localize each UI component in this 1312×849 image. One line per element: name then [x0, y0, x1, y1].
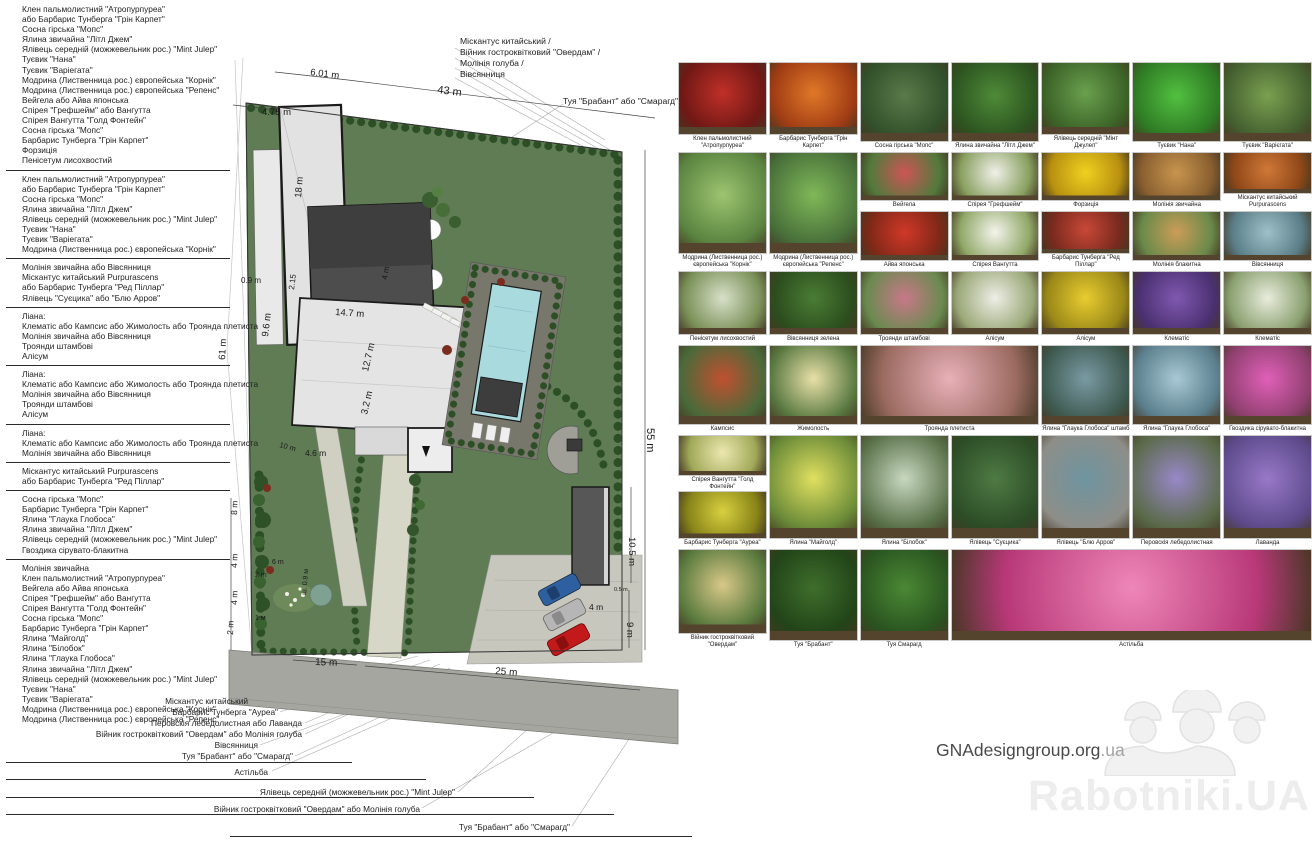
plant-caption: Ялина "Глаука Глобоса" штамб: [1041, 425, 1130, 433]
plant-label: Барбарис Тунберга "Грін Карпет": [22, 135, 230, 145]
plant-label: Міскантус китайський Purpurascens: [22, 466, 230, 476]
plant-card: Ялівець "Блю Арров": [1041, 435, 1130, 547]
plant-caption: Модрина (Лиственница рос.) європейська "…: [678, 254, 767, 269]
plant-caption: Вівсянниця зелена: [769, 335, 858, 343]
plant-label: Ялівець "Суєцика" або "Блю Арров": [22, 293, 230, 303]
plant-card: Гвоздика сірувато-блакитна: [1223, 345, 1312, 433]
plant-card: Клематіс: [1223, 271, 1312, 343]
plant-caption: Алісум: [1041, 335, 1130, 343]
plant-label: або Барбарис Тунберга "Грін Карпет": [22, 184, 230, 194]
dimension-label: 25 m: [495, 666, 518, 679]
plant-label: Клен пальмолистний "Атропурпуреа": [22, 573, 230, 583]
plant-label: Ялина звичайна "Літл Джем": [22, 34, 230, 44]
plant-card: Туя Смарагд: [860, 549, 949, 649]
plant-label: Туя "Брабант" або "Смарагд": [459, 822, 570, 832]
plant-caption: Троянди штамбові: [860, 335, 949, 343]
plant-caption: Барбарис Тунберга "Ауреа": [678, 539, 767, 547]
plant-label: Пенісетум лисохвостий: [22, 155, 230, 165]
plant-group: Міскантус китайський Purpurascensабо Бар…: [6, 462, 230, 488]
plant-label: Сосна гірська "Мопс": [22, 194, 230, 204]
plant-label: Модрина (Лиственница рос.) європейська "…: [22, 244, 230, 254]
plant-label: Перовскія лебедолистная або Лаванда: [151, 718, 302, 728]
dimension-label: 2 m: [255, 572, 267, 579]
plant-photo: [860, 345, 1040, 425]
plant-caption: Троянда плетиста: [860, 425, 1040, 433]
plant-photo: [1041, 271, 1130, 335]
plant-caption: Війник гостроквітковий "Овердам": [678, 634, 767, 649]
plant-card: Барбарис Тунберга "Ауреа": [678, 491, 767, 547]
plant-caption: Ялівець "Суєцика": [951, 539, 1040, 547]
plant-label: Ялівець середній (можжевельник рос.) "Mi…: [22, 214, 230, 224]
dimension-label: 15 m: [315, 657, 338, 669]
plant-photo: [860, 271, 949, 335]
plant-card: Ялина "Глаука Глобоса" штамб: [1041, 345, 1130, 433]
plant-photo: [860, 211, 949, 261]
plant-photo: [860, 62, 949, 142]
plant-photo: [1041, 345, 1130, 425]
plant-photo: [1041, 62, 1130, 135]
dimension-label: 9 m: [624, 622, 635, 638]
plant-label: Молінія звичайна або Вівсянниця: [22, 262, 230, 272]
plant-group: Клен пальмолистний "Атропурпуреа"або Бар…: [6, 170, 230, 257]
plant-label: Молінія звичайна або Вівсянниця: [22, 389, 230, 399]
top-plant-labels: Міскантус китайський /Війник гостроквітк…: [460, 36, 600, 80]
plant-label: Туєвик "Варіегата": [22, 65, 230, 75]
plant-card: Вівсянниця: [1223, 211, 1312, 269]
plant-card: Вівсянниця зелена: [769, 271, 858, 343]
plant-card: Ялина звичайна "Літл Джем": [951, 62, 1040, 150]
plant-label: Молінія звичайна або Вівсянниця: [22, 331, 230, 341]
plant-caption: Молінія блакитна: [1132, 261, 1221, 269]
plant-caption: Туя Смарагд: [860, 641, 949, 649]
plant-photo: [1132, 345, 1221, 425]
plant-card: Лаванда: [1223, 435, 1312, 547]
plant-card: Спірея Вангутта: [951, 211, 1040, 269]
dimension-label: 4 m: [589, 602, 603, 612]
plant-photo: [860, 549, 949, 641]
plant-group: Ліана:Клематіс або Кампсис або Жимолость…: [6, 424, 230, 460]
plant-card: Астільба: [951, 549, 1312, 649]
plant-photo: [860, 152, 949, 201]
plant-photo: [1041, 435, 1130, 539]
plant-caption: Клематіс: [1223, 335, 1312, 343]
plant-label: Вейгела або Айва японська: [22, 583, 230, 593]
plant-card: Барбарис Тунберга "Грін Карпет": [769, 62, 858, 150]
plant-card: Айва японська: [860, 211, 949, 269]
plant-label: Міскантус китайський Purpurascens: [22, 272, 230, 282]
plant-label: Туєвик "Варіегата": [22, 234, 230, 244]
plant-photo: [769, 435, 858, 539]
plant-label: Форзиція: [22, 145, 230, 155]
dimension-label: 43 m: [437, 84, 463, 99]
plant-label: Ялина звичайна "Літл Джем": [22, 664, 230, 674]
plant-caption: Туєвик "Нана": [1132, 142, 1221, 150]
plant-photo: [769, 271, 858, 335]
plant-label: Сосна гірська "Мопс": [22, 494, 230, 504]
plant-label: Молінія звичайна або Вівсянниця: [22, 448, 230, 458]
dimension-label: 4 m: [229, 591, 239, 606]
plant-caption: Астільба: [951, 641, 1312, 649]
plant-card: Модрина (Лиственница рос.) європейська "…: [769, 152, 858, 269]
plant-card: Перовскія лебедолистная: [1132, 435, 1221, 547]
plant-group: Ліана:Клематіс або Кампсис або Жимолость…: [6, 365, 230, 421]
plant-label: Міскантус китайський: [165, 696, 248, 706]
dimension-label: 0.5 m: [614, 587, 628, 593]
plant-label: Ялина "Глаука Глобоса": [22, 653, 230, 663]
left-plant-list: Клен пальмолистний "Атропурпуреа"або Бар…: [6, 3, 230, 726]
plant-label: Війник гостроквітковий "Овердам" /: [460, 47, 600, 58]
rule: [6, 814, 614, 815]
plant-photo: [1132, 435, 1221, 539]
plant-photo: [1223, 345, 1312, 425]
plant-label: Ліана:: [22, 369, 230, 379]
plant-label: Алісум: [22, 409, 230, 419]
dimension-label: 4 m: [229, 554, 239, 569]
plant-caption: Пенісетум лисохвостий: [678, 335, 767, 343]
plant-label: Спірея "Грефшейм" або Вангутта: [22, 105, 230, 115]
plant-card: Ялина "Майголд": [769, 435, 858, 547]
site-url: GNAdesigngroup.org.ua: [936, 740, 1125, 761]
plant-card: Вейгела: [860, 152, 949, 209]
plant-photo: [769, 345, 858, 425]
plant-caption: Молінія звичайна: [1132, 201, 1221, 209]
plant-label: Клематіс або Кампсис або Жимолость або Т…: [22, 438, 230, 448]
plant-label: Сосна гірська "Мопс": [22, 613, 230, 623]
plant-photo: [769, 549, 858, 641]
dimension-label: 18 m: [293, 176, 306, 198]
plant-label: Ялина "Глаука Глобоса": [22, 514, 230, 524]
plant-photo: [1041, 211, 1130, 254]
plant-card: Війник гостроквітковий "Овердам": [678, 549, 767, 649]
plant-photo: [1223, 62, 1312, 142]
plant-label: Барбарис Тунберга "Ауреа": [172, 707, 278, 717]
plant-label: Клен пальмолистний "Атропурпуреа": [22, 174, 230, 184]
plant-label: Туєвик "Нана": [22, 54, 230, 64]
plant-label: або Барбарис Тунберга "Ред Піллар": [22, 282, 230, 292]
plant-label: Вівсянниця: [215, 740, 258, 750]
plant-label: Молінія голуба /: [460, 58, 600, 69]
plant-label: Війник гостроквітковий "Овердам" або Мол…: [96, 729, 302, 739]
plant-label: Барбарис Тунберга "Грін Карпет": [22, 623, 230, 633]
plant-card: Клен пальмолистний "Атропурпуреа": [678, 62, 767, 150]
plant-caption: Перовскія лебедолистная: [1132, 539, 1221, 547]
plant-card: Троянда плетиста: [860, 345, 1040, 433]
plant-caption: Кампсис: [678, 425, 767, 433]
workers-icon: [1095, 690, 1295, 781]
plant-label: Сосна гірська "Мопс": [22, 125, 230, 135]
plant-caption: Міскантус китайський Purpurascens: [1223, 194, 1312, 209]
plant-group: Клен пальмолистний "Атропурпуреа"або Бар…: [6, 3, 230, 168]
plant-card: Молінія блакитна: [1132, 211, 1221, 269]
plant-photo: [951, 549, 1312, 641]
plant-caption: Спірея "Грефшейм": [951, 201, 1040, 209]
plant-photo: [951, 62, 1040, 142]
plant-group: Молінія звичайна або ВівсянницяМіскантус…: [6, 258, 230, 304]
plant-caption: Айва японська: [860, 261, 949, 269]
plant-label: Міскантус китайський /: [460, 36, 600, 47]
plant-photo: [1223, 435, 1312, 539]
plant-photo: [1132, 211, 1221, 261]
plant-label: Ліана:: [22, 311, 230, 321]
plant-photo: [1132, 152, 1221, 201]
plant-label: Вейгела або Айва японська: [22, 95, 230, 105]
plant-photo: [951, 152, 1040, 201]
plant-photo: [678, 62, 767, 135]
pond: [310, 584, 332, 606]
plant-caption: Вейгела: [860, 201, 949, 209]
plant-card: Спірея Вангутта "Голд Фонтейн": [678, 435, 767, 491]
plant-caption: Вівсянниця: [1223, 261, 1312, 269]
plant-label: Ялина звичайна "Літл Джем": [22, 524, 230, 534]
dimension-label: 1 м: [255, 615, 266, 622]
plant-label: Молінія звичайна: [22, 563, 230, 573]
rule: [6, 797, 534, 798]
landscape-design-sheet: { "left_plant_groups": [ {"lines":["Клен…: [0, 0, 1312, 844]
plant-caption: Туєвик "Варієгата": [1223, 142, 1312, 150]
plant-label: Гвоздика сірувато-блакитна: [22, 545, 230, 555]
plant-label: Ялівець середній (можжевельник рос.) "Mi…: [260, 787, 455, 797]
plant-label: Сосна гірська "Мопс": [22, 24, 230, 34]
plant-caption: Форзиція: [1041, 201, 1130, 209]
plant-photo: [678, 152, 767, 254]
plant-photo: [678, 549, 767, 634]
plant-label: Війник гостроквітковий "Овердам" або Мол…: [214, 804, 420, 814]
plant-card: Алісум: [1041, 271, 1130, 343]
dimension-label: 6.01 m: [310, 67, 340, 81]
plant-card: Жимолость: [769, 345, 858, 433]
plant-label: Ялина звичайна "Літл Джем": [22, 204, 230, 214]
plant-photo: [860, 435, 949, 539]
plant-caption: Ялина "Глаука Глобоса": [1132, 425, 1221, 433]
plant-photo: [678, 271, 767, 335]
plant-caption: Ялівець "Блю Арров": [1041, 539, 1130, 547]
plant-card: Туєвик "Варієгата": [1223, 62, 1312, 150]
plant-label: Ліана:: [22, 428, 230, 438]
plant-photo: [951, 435, 1040, 539]
plant-caption: Ялина звичайна "Літл Джем": [951, 142, 1040, 150]
plant-caption: Барбарис Тунберга "Грін Карпет": [769, 135, 858, 150]
rule: [230, 836, 692, 837]
plant-group: Ліана:Клематіс або Кампсис або Жимолость…: [6, 307, 230, 363]
plant-label: Ялина "Білобок": [22, 643, 230, 653]
plant-label: Троянди штамбові: [22, 399, 230, 409]
plant-card: Клематіс: [1132, 271, 1221, 343]
top-thuja-label: Туя "Брабант" або "Смарагд": [563, 96, 678, 106]
plant-catalog: Клен пальмолистний "Атропурпуреа"Барбари…: [678, 62, 1312, 649]
plant-caption: Жимолость: [769, 425, 858, 433]
plant-photo: [1041, 152, 1130, 201]
plant-label: Модрина (Лиственница рос.) європейська "…: [22, 85, 230, 95]
plant-photo: [1223, 152, 1312, 194]
plant-card: Спірея Вангутта "Голд Фонтейн"Барбарис Т…: [678, 435, 767, 547]
dimension-label: 55 m: [644, 428, 656, 452]
plant-photo: [951, 271, 1040, 335]
garage: [572, 487, 609, 585]
plant-label: Троянди штамбові: [22, 341, 230, 351]
plant-photo: [769, 62, 858, 135]
dimension-label: 4.6 m: [305, 448, 326, 458]
plant-group: Сосна гірська "Мопс"Барбарис Тунберга "Г…: [6, 490, 230, 557]
plant-label: Ялівець середній (можжевельник рос.) "Mi…: [22, 534, 230, 544]
rabotniki-watermark: Rabotniki.UA: [1028, 772, 1310, 821]
rule: [6, 762, 352, 763]
plant-caption: Сосна гірська "Мопс": [860, 142, 949, 150]
plant-card: Модрина (Лиственница рос.) європейська "…: [678, 152, 767, 269]
plant-photo: [678, 435, 767, 476]
plant-photo: [1132, 62, 1221, 142]
site-url-main: GNAdesigngroup.org: [936, 740, 1100, 760]
plant-label: Ялина "Майголд": [22, 633, 230, 643]
plant-label: або Барбарис Тунберга "Ред Піллар": [22, 476, 230, 486]
plant-caption: Лаванда: [1223, 539, 1312, 547]
site-url-suffix: .ua: [1100, 740, 1124, 760]
plant-label: Астільба: [234, 767, 268, 777]
dimension-label: 0.9 m: [241, 276, 261, 285]
plant-caption: Спірея Вангутта: [951, 261, 1040, 269]
plant-card: Молінія звичайна: [1132, 152, 1221, 209]
plant-label: Спірея Вангутта "Голд Фонтейн": [22, 115, 230, 125]
plant-card: Форзиція: [1041, 152, 1130, 209]
plant-label: Спірея Вангутта "Голд Фонтейн": [22, 603, 230, 613]
plant-label: Клематіс або Кампсис або Жимолость або Т…: [22, 321, 230, 331]
plant-card: Кампсис: [678, 345, 767, 433]
dimension-label: 6 m: [272, 559, 284, 566]
terrace-step: [355, 427, 408, 455]
plant-photo: [678, 345, 767, 425]
plant-card: Ялівець "Суєцика": [951, 435, 1040, 547]
plant-label: Модрина (Лиственница рос.) європейська "…: [22, 75, 230, 85]
dimension-label: 14.7 m: [335, 307, 365, 320]
plant-card: Пенісетум лисохвостий: [678, 271, 767, 343]
plant-caption: Гвоздика сірувато-блакитна: [1223, 425, 1312, 433]
plant-label: Спірея "Грефшейм" або Вангутта: [22, 593, 230, 603]
plant-photo: [1223, 271, 1312, 335]
plant-photo: [678, 491, 767, 539]
plant-caption: Барбарис Тунберга "Ред Піллар": [1041, 254, 1130, 269]
plant-label: Клен пальмолистний "Атропурпуреа": [22, 4, 230, 14]
plant-card: Алісум: [951, 271, 1040, 343]
plant-caption: Клематіс: [1132, 335, 1221, 343]
plant-caption: Алісум: [951, 335, 1040, 343]
plant-caption: Спірея Вангутта "Голд Фонтейн": [678, 476, 767, 491]
grill: [567, 439, 582, 451]
plant-card: Міскантус китайський Purpurascens: [1223, 152, 1312, 209]
plant-label: Туєвик "Нана": [22, 224, 230, 234]
dimension-label: 4.75 m: [262, 107, 291, 118]
dimension-label: 8 m: [229, 501, 239, 516]
plant-photo: [951, 211, 1040, 261]
plant-card: Туєвик "Нана": [1132, 62, 1221, 150]
plant-card: Сосна гірська "Мопс": [860, 62, 949, 150]
plant-label: Ялівець середній (можжевельник рос.) "Mi…: [22, 674, 230, 684]
rule: [6, 779, 426, 780]
plant-card: Троянди штамбові: [860, 271, 949, 343]
plant-caption: Туя "Брабант": [769, 641, 858, 649]
plant-label: Туя "Брабант" або "Смарагд": [182, 751, 293, 761]
plant-label: Ялівець середній (можжевельник рос.) "Mi…: [22, 44, 230, 54]
plant-label: Алісум: [22, 351, 230, 361]
plant-label: Вівсянниця: [460, 69, 600, 80]
plant-card: Ялина "Глаука Глобоса": [1132, 345, 1221, 433]
pavilion: [476, 377, 523, 417]
plant-photo: [1223, 211, 1312, 261]
plant-photo: [769, 152, 858, 254]
plant-photo: [1132, 271, 1221, 335]
dimension-label: 10.5 m: [626, 537, 637, 566]
plant-card: Ялина "Білобок": [860, 435, 949, 547]
plant-label: Клематіс або Кампсис або Жимолость або Т…: [22, 379, 230, 389]
plant-card: Барбарис Тунберга "Ред Піллар": [1041, 211, 1130, 269]
plant-label: або Барбарис Тунберга "Грін Карпет": [22, 14, 230, 24]
plant-label: Туєвик "Нана": [22, 684, 230, 694]
plant-caption: Ялина "Майголд": [769, 539, 858, 547]
plant-card: Спірея "Грефшейм": [951, 152, 1040, 209]
plant-label: Барбарис Тунберга "Грін Карпет": [22, 504, 230, 514]
plant-caption: Ялина "Білобок": [860, 539, 949, 547]
plant-caption: Модрина (Лиственница рос.) європейська "…: [769, 254, 858, 269]
plant-card: Ялівець середній "Мінт Джулеп": [1041, 62, 1130, 150]
plant-caption: Ялівець середній "Мінт Джулеп": [1041, 135, 1130, 150]
plant-caption: Клен пальмолистний "Атропурпуреа": [678, 135, 767, 150]
plant-card: Туя "Брабант": [769, 549, 858, 649]
